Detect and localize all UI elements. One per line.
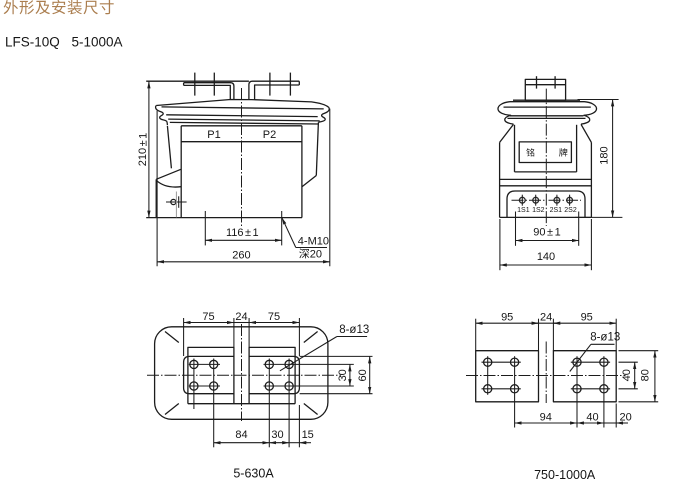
svg-text:P2: P2: [263, 129, 276, 141]
svg-text:20: 20: [619, 411, 631, 423]
svg-text:95: 95: [501, 311, 513, 323]
svg-text:40: 40: [621, 369, 633, 381]
svg-text:1S1: 1S1: [517, 207, 530, 214]
svg-text:P1: P1: [207, 129, 220, 141]
svg-text:140: 140: [537, 251, 555, 263]
svg-text:5-630A: 5-630A: [233, 467, 274, 481]
svg-text:2S1: 2S1: [550, 207, 563, 214]
svg-text:5-1000A: 5-1000A: [72, 35, 123, 50]
svg-text:260: 260: [232, 250, 250, 262]
svg-text:30: 30: [271, 429, 283, 441]
svg-text:24: 24: [540, 311, 552, 323]
svg-text:80: 80: [639, 369, 651, 381]
svg-text:180: 180: [598, 146, 610, 164]
svg-text:8-ø13: 8-ø13: [339, 324, 369, 336]
svg-text:4-M10: 4-M10: [298, 235, 329, 247]
svg-text:210±1: 210±1: [137, 133, 149, 167]
svg-text:1S2: 1S2: [532, 207, 545, 214]
svg-text:116±1: 116±1: [226, 227, 259, 239]
svg-text:95: 95: [581, 311, 593, 323]
svg-text:75: 75: [202, 311, 214, 323]
svg-text:2S2: 2S2: [564, 207, 577, 214]
svg-text:30: 30: [337, 369, 349, 381]
svg-text:84: 84: [235, 429, 247, 441]
svg-text:750-1000A: 750-1000A: [534, 468, 596, 482]
svg-text:24: 24: [235, 311, 247, 323]
svg-text:LFS-10Q: LFS-10Q: [5, 35, 60, 50]
svg-text:15: 15: [302, 429, 314, 441]
svg-text:75: 75: [268, 311, 280, 323]
svg-text:90±1: 90±1: [533, 226, 560, 238]
svg-text:8-ø13: 8-ø13: [590, 332, 620, 344]
svg-text:40: 40: [586, 411, 598, 423]
svg-text:94: 94: [540, 411, 552, 423]
svg-text:60: 60: [357, 369, 369, 381]
svg-text:20: 20: [310, 249, 322, 261]
